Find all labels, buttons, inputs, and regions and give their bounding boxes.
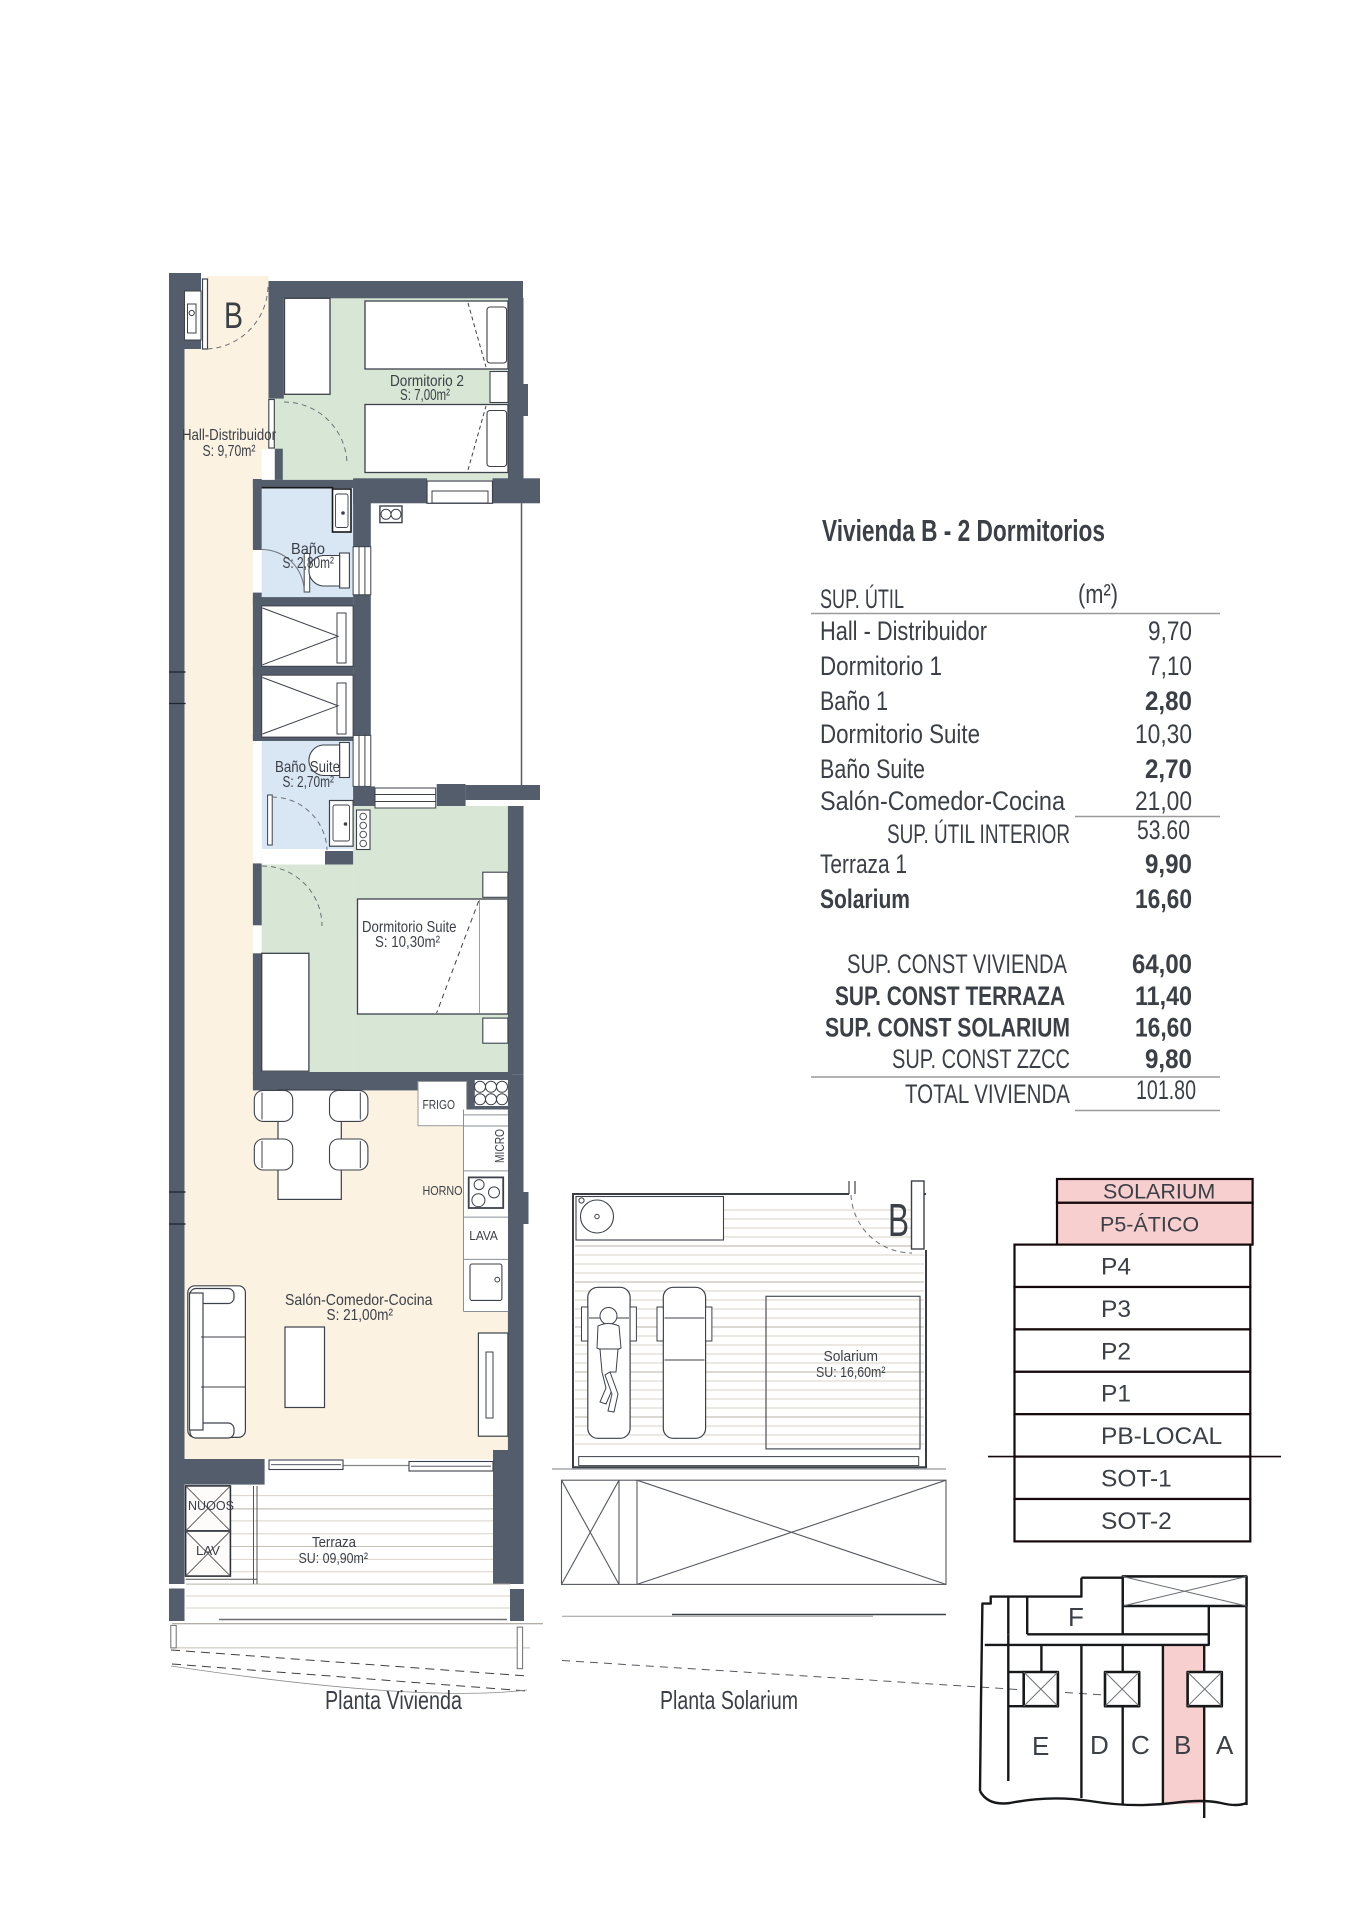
svg-text:SU: 09,90m²: SU: 09,90m² — [299, 1550, 369, 1567]
svg-text:Planta Vivienda: Planta Vivienda — [325, 1685, 462, 1715]
svg-text:S: 21,00m²: S: 21,00m² — [327, 1307, 394, 1324]
svg-text:B: B — [1174, 1730, 1191, 1760]
svg-text:NUOOS: NUOOS — [188, 1499, 234, 1513]
svg-text:C: C — [1131, 1730, 1150, 1760]
svg-text:P5-ÁTICO: P5-ÁTICO — [1100, 1212, 1199, 1237]
svg-text:SUP. CONST TERRAZA: SUP. CONST TERRAZA — [835, 981, 1065, 1011]
svg-text:LAVA: LAVA — [469, 1228, 498, 1243]
svg-text:F: F — [1068, 1602, 1084, 1632]
svg-text:P2: P2 — [1101, 1338, 1131, 1365]
svg-text:P4: P4 — [1101, 1254, 1131, 1281]
svg-text:SOLARIUM: SOLARIUM — [1103, 1180, 1215, 1204]
svg-text:21,00: 21,00 — [1135, 786, 1192, 816]
svg-text:MICRO: MICRO — [492, 1129, 507, 1163]
svg-text:(m²): (m²) — [1078, 579, 1118, 609]
svg-text:Baño Suite: Baño Suite — [820, 754, 925, 784]
svg-text:Hall - Distribuidor: Hall - Distribuidor — [820, 616, 987, 646]
svg-text:SUP. CONST SOLARIUM: SUP. CONST SOLARIUM — [825, 1013, 1070, 1043]
svg-text:9,90: 9,90 — [1145, 849, 1192, 879]
svg-text:S: 7,00m²: S: 7,00m² — [400, 387, 450, 404]
svg-text:Vivienda B - 2 Dormitorios: Vivienda B - 2 Dormitorios — [822, 513, 1105, 548]
svg-text:Dormitorio Suite: Dormitorio Suite — [820, 719, 980, 749]
svg-text:LAV: LAV — [196, 1544, 221, 1558]
svg-text:9,80: 9,80 — [1145, 1044, 1192, 1074]
svg-text:A: A — [1216, 1730, 1234, 1760]
svg-text:FRIGO: FRIGO — [423, 1097, 456, 1112]
svg-text:2,70: 2,70 — [1145, 754, 1192, 784]
svg-text:2,80: 2,80 — [1145, 686, 1192, 716]
svg-text:SUP. CONST VIVIENDA: SUP. CONST VIVIENDA — [847, 949, 1067, 979]
svg-text:SU: 16,60m²: SU: 16,60m² — [816, 1364, 886, 1381]
svg-text:E: E — [1032, 1731, 1049, 1761]
svg-text:Hall-Distribuidor: Hall-Distribuidor — [182, 427, 277, 444]
svg-text:B: B — [224, 295, 243, 336]
svg-text:HORNO: HORNO — [423, 1183, 463, 1198]
svg-text:S: 2,70m²: S: 2,70m² — [283, 774, 335, 791]
svg-text:SOT-1: SOT-1 — [1101, 1466, 1172, 1493]
svg-text:B: B — [888, 1194, 909, 1246]
svg-text:SUP. ÚTIL: SUP. ÚTIL — [820, 583, 904, 614]
svg-text:SOT-2: SOT-2 — [1101, 1508, 1172, 1535]
svg-text:9,70: 9,70 — [1148, 616, 1192, 646]
svg-text:TOTAL VIVIENDA: TOTAL VIVIENDA — [905, 1079, 1070, 1109]
svg-text:Terraza 1: Terraza 1 — [820, 849, 907, 879]
svg-text:53.60: 53.60 — [1137, 815, 1190, 845]
svg-text:PB-LOCAL: PB-LOCAL — [1101, 1423, 1222, 1450]
svg-text:SUP. ÚTIL INTERIOR: SUP. ÚTIL INTERIOR — [887, 818, 1070, 849]
svg-text:Baño 1: Baño 1 — [820, 686, 888, 716]
svg-text:7,10: 7,10 — [1148, 651, 1192, 681]
svg-text:Solarium: Solarium — [820, 884, 910, 914]
svg-text:P3: P3 — [1101, 1296, 1131, 1323]
svg-text:64,00: 64,00 — [1132, 949, 1192, 979]
svg-text:Planta Solarium: Planta Solarium — [660, 1685, 798, 1715]
svg-text:Solarium: Solarium — [824, 1348, 879, 1365]
svg-text:11,40: 11,40 — [1135, 981, 1192, 1011]
svg-text:10,30: 10,30 — [1135, 719, 1192, 749]
svg-text:SUP. CONST ZZCC: SUP. CONST ZZCC — [892, 1044, 1070, 1074]
svg-text:S: 2,80m²: S: 2,80m² — [283, 555, 335, 572]
svg-text:101.80: 101.80 — [1136, 1075, 1196, 1105]
svg-text:Salón-Comedor-Cocina: Salón-Comedor-Cocina — [820, 786, 1066, 816]
svg-text:Dormitorio 1: Dormitorio 1 — [820, 651, 942, 681]
svg-text:Terraza: Terraza — [312, 1534, 357, 1551]
svg-text:16,60: 16,60 — [1135, 1013, 1192, 1043]
svg-text:S: 9,70m²: S: 9,70m² — [203, 443, 257, 460]
svg-text:S: 10,30m²: S: 10,30m² — [375, 934, 441, 951]
svg-text:P1: P1 — [1101, 1381, 1131, 1408]
svg-text:D: D — [1090, 1730, 1109, 1760]
svg-text:16,60: 16,60 — [1135, 884, 1192, 914]
